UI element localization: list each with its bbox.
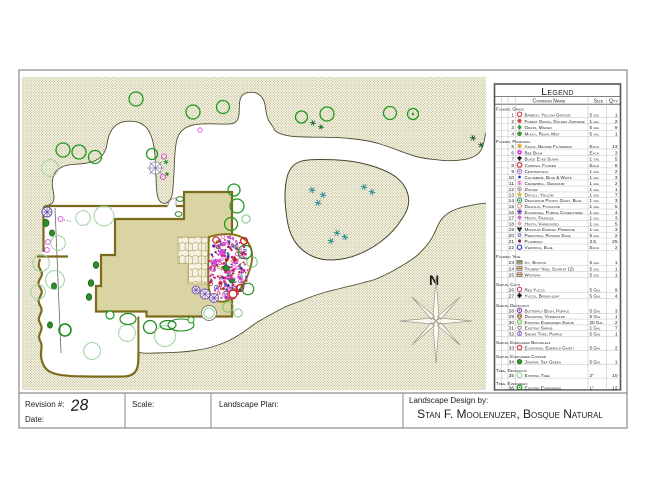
svg-text:Cranesbill, Geranium: Cranesbill, Geranium — [525, 181, 565, 186]
svg-text:Landscape Plan:: Landscape Plan: — [219, 400, 279, 409]
svg-text:5 gal: 5 gal — [590, 233, 600, 238]
svg-text:Date:: Date: — [25, 415, 44, 424]
svg-text:Existing Evergreen: Existing Evergreen — [525, 385, 561, 390]
svg-text:Each: Each — [590, 144, 599, 149]
svg-text:1 gal: 1 gal — [590, 157, 600, 162]
svg-text:Hosta, Variegated: Hosta, Variegated — [525, 221, 560, 226]
svg-text:1 gal: 1 gal — [590, 198, 600, 203]
svg-text:Landscape Design by:: Landscape Design by: — [409, 396, 488, 405]
svg-text:1 gal: 1 gal — [590, 175, 600, 180]
svg-text:Common Name: Common Name — [532, 99, 565, 105]
svg-text:5 Gal: 5 Gal — [590, 308, 601, 313]
svg-text:Veronica, Blue: Veronica, Blue — [525, 245, 553, 250]
svg-text:Muhly, Regal Mist: Muhly, Regal Mist — [525, 132, 560, 137]
svg-text:5 Gal: 5 Gal — [590, 287, 601, 292]
svg-text:5 gal: 5 gal — [590, 132, 600, 137]
svg-text:Hosta, Frances: Hosta, Frances — [525, 216, 554, 221]
svg-text:Trumpet Vine, Scarlet (2): Trumpet Vine, Scarlet (2) — [525, 266, 575, 271]
svg-text:Delphinium Pacific Giant, Blue: Delphinium Pacific Giant, Blue — [525, 198, 582, 203]
svg-text:1 Gal: 1 Gal — [590, 326, 601, 331]
svg-text:Centranthus: Centranthus — [525, 169, 549, 174]
svg-text:5 Gal: 5 Gal — [590, 332, 601, 337]
svg-text:Perovskia, Russian Sage: Perovskia, Russian Sage — [525, 233, 571, 238]
svg-text:Each: Each — [590, 245, 599, 250]
svg-text:Black Eyed Susan: Black Eyed Susan — [525, 157, 559, 162]
svg-text:5 gal: 5 gal — [590, 112, 600, 117]
svg-text:Flower, Grass: Flower, Grass — [496, 106, 524, 111]
svg-text:Stan F. Moolenuzer, Bosque Nat: Stan F. Moolenuzer, Bosque Natural — [417, 407, 603, 421]
svg-text:1 gal: 1 gal — [590, 216, 600, 221]
svg-text:Missouri Evening Primrose: Missouri Evening Primrose — [525, 227, 575, 232]
svg-text:20 Gal: 20 Gal — [590, 320, 604, 325]
svg-text:Revision #:: Revision #: — [25, 400, 65, 409]
svg-text:28: 28 — [69, 397, 89, 415]
svg-text:Echinacea, Purple Coneflower: Echinacea, Purple Coneflower — [525, 210, 584, 215]
svg-text:Cardinal Flower: Cardinal Flower — [525, 163, 557, 168]
svg-text:Qty: Qty — [609, 99, 618, 105]
svg-text:Forest Grass, Golden Japanese: Forest Grass, Golden Japanese — [525, 119, 585, 124]
svg-text:Plumbago: Plumbago — [525, 239, 544, 244]
svg-text:Digitalis, Foxglove: Digitalis, Foxglove — [525, 204, 560, 209]
svg-text:Red Yucca: Red Yucca — [525, 287, 545, 292]
svg-text:5 Gal: 5 Gal — [590, 360, 601, 365]
svg-text:Bamboo, Yellow Groove: Bamboo, Yellow Groove — [525, 112, 571, 117]
svg-text:Smoke Tree, Purple: Smoke Tree, Purple — [525, 332, 563, 337]
svg-text:1 gal: 1 gal — [590, 227, 600, 232]
svg-text:Dogwood, Variegated: Dogwood, Variegated — [525, 314, 566, 319]
svg-text:Shrub, Evergreen Broadleaf: Shrub, Evergreen Broadleaf — [496, 340, 551, 345]
svg-text:Existing Tree: Existing Tree — [525, 373, 550, 378]
svg-text:Size: Size — [594, 99, 604, 105]
svg-text:Ajuga, Bronze Flowering: Ajuga, Bronze Flowering — [525, 144, 573, 149]
svg-text:2″: 2″ — [590, 373, 595, 378]
svg-text:1″: 1″ — [590, 385, 595, 390]
svg-text:Bee Balm: Bee Balm — [525, 150, 543, 155]
svg-text:1 gal: 1 gal — [590, 119, 600, 124]
svg-text:Columbine, Blue & White: Columbine, Blue & White — [525, 175, 572, 180]
svg-text:Scale:: Scale: — [132, 400, 154, 409]
svg-text:Flower, Vine: Flower, Vine — [496, 254, 520, 259]
svg-text:1 gal: 1 gal — [590, 169, 600, 174]
svg-text:Shrub, Evergreen Conifer: Shrub, Evergreen Conifer — [496, 354, 547, 359]
svg-text:1 gal: 1 gal — [590, 204, 600, 209]
svg-text:Shrub, Cacti: Shrub, Cacti — [496, 282, 520, 287]
svg-text:5 gal: 5 gal — [590, 266, 600, 271]
svg-text:Ivy, Boston: Ivy, Boston — [525, 260, 547, 265]
svg-text:Wisteria: Wisteria — [525, 273, 541, 278]
svg-text:5 Gal: 5 Gal — [590, 293, 601, 298]
svg-text:1 gal: 1 gal — [590, 181, 600, 186]
svg-text:Euonymus, Emerald Gaiety: Euonymus, Emerald Gaiety — [525, 346, 575, 351]
svg-text:Shrub, Deciduous: Shrub, Deciduous — [496, 303, 529, 308]
svg-text:1 gal: 1 gal — [590, 193, 600, 198]
svg-text:Each: Each — [590, 150, 599, 155]
svg-text:Tree, Deciduous: Tree, Deciduous — [496, 368, 527, 373]
svg-text:Each: Each — [590, 163, 599, 168]
svg-text:Yucca, Broad-leaf: Yucca, Broad-leaf — [525, 293, 560, 298]
svg-text:Datura: Datura — [525, 187, 538, 192]
svg-text:Butterfly Bush, Purple: Butterfly Bush, Purple — [525, 308, 570, 313]
svg-text:5 Gal: 5 Gal — [590, 314, 601, 319]
svg-text:Daylily, Yellow: Daylily, Yellow — [525, 193, 554, 198]
svg-text:Existing Shrub: Existing Shrub — [525, 326, 553, 331]
svg-text:1 gal: 1 gal — [590, 210, 600, 215]
svg-text:Juniper, Sea Green: Juniper, Sea Green — [525, 360, 561, 365]
svg-text:1 gal: 1 gal — [590, 221, 600, 226]
svg-text:5 gal: 5 gal — [590, 260, 600, 265]
svg-text:5 gal: 5 gal — [590, 273, 600, 278]
svg-text:Tree, Evergreen: Tree, Evergreen — [496, 381, 527, 386]
svg-text:3.5: 3.5 — [590, 239, 597, 244]
svg-text:Existing Evergreen Shrub: Existing Evergreen Shrub — [525, 320, 574, 325]
svg-text:Grass, Maiden: Grass, Maiden — [525, 125, 552, 130]
svg-text:1 gal: 1 gal — [590, 187, 600, 192]
svg-text:N: N — [429, 272, 439, 288]
svg-text:5 Gal: 5 Gal — [590, 346, 601, 351]
svg-text:5 gal: 5 gal — [590, 125, 600, 130]
